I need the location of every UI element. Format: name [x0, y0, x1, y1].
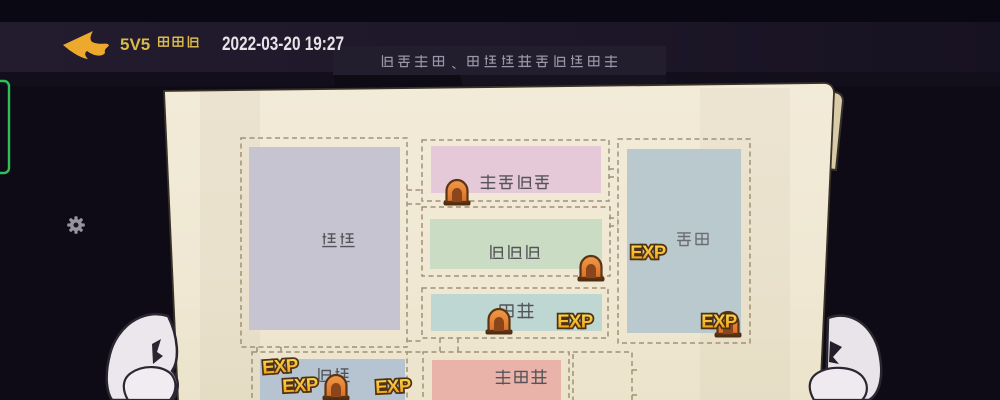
svg-text:EXP: EXP [282, 374, 319, 397]
svg-text:5V5: 5V5 [120, 35, 150, 54]
svg-text:2022-03-20 19:27: 2022-03-20 19:27 [222, 34, 344, 55]
svg-text:EXP: EXP [375, 375, 412, 398]
svg-text:EXP: EXP [701, 311, 737, 332]
svg-text:EXP: EXP [630, 242, 666, 263]
svg-text:EXP: EXP [557, 311, 593, 332]
